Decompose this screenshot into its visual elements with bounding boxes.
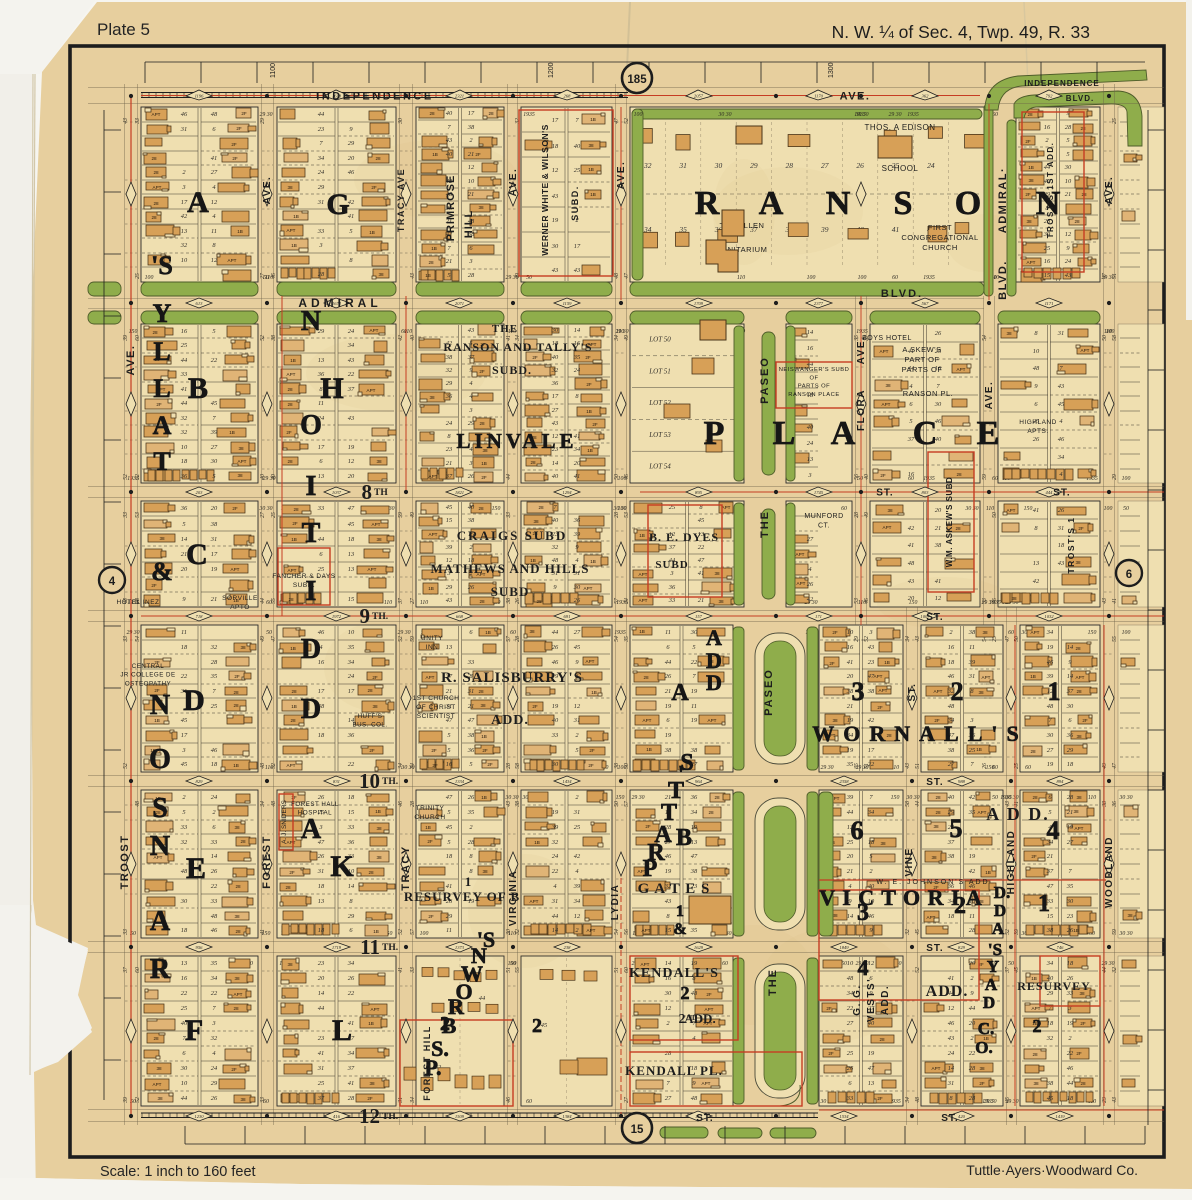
svg-text:C.: C.	[978, 1019, 995, 1038]
svg-text:24: 24	[348, 673, 355, 680]
svg-text:2F: 2F	[826, 1006, 832, 1011]
svg-text:39: 39	[123, 335, 129, 342]
svg-text:17: 17	[868, 747, 875, 754]
svg-text:29: 29	[1067, 747, 1074, 754]
svg-text:2F: 2F	[232, 156, 238, 161]
svg-text:47: 47	[691, 853, 698, 860]
svg-text:1629: 1629	[694, 945, 704, 950]
svg-text:2F: 2F	[880, 473, 886, 478]
svg-text:HUFF'S: HUFF'S	[358, 713, 383, 720]
svg-text:30: 30	[551, 243, 559, 250]
svg-text:SCIENTIST: SCIENTIST	[417, 713, 455, 720]
svg-text:SUBD.: SUBD.	[570, 185, 580, 221]
svg-text:APT: APT	[1076, 675, 1085, 680]
svg-text:45: 45	[574, 644, 580, 651]
svg-text:110: 110	[986, 506, 994, 512]
svg-text:24: 24	[211, 1065, 218, 1072]
svg-text:203: 203	[196, 490, 204, 495]
svg-text:F: F	[185, 1014, 203, 1047]
svg-text:12: 12	[468, 164, 475, 171]
svg-text:33: 33	[347, 824, 354, 831]
svg-text:34: 34	[690, 809, 698, 816]
svg-text:34: 34	[210, 975, 218, 982]
svg-text:N: N	[150, 690, 170, 721]
svg-text:31: 31	[180, 126, 187, 133]
svg-text:38: 38	[210, 521, 218, 528]
svg-text:38: 38	[968, 629, 976, 636]
svg-text:37: 37	[398, 597, 404, 605]
svg-text:28: 28	[969, 1065, 976, 1072]
svg-text:110: 110	[1088, 795, 1096, 801]
svg-text:28: 28	[288, 597, 294, 602]
svg-text:47: 47	[868, 1065, 875, 1072]
svg-text:27: 27	[1047, 747, 1054, 754]
svg-text:2: 2	[681, 983, 690, 1003]
svg-text:45: 45	[211, 400, 217, 407]
svg-text:48: 48	[908, 560, 915, 567]
svg-text:40: 40	[807, 424, 814, 431]
svg-text:35: 35	[690, 927, 697, 934]
svg-text:17: 17	[552, 393, 559, 400]
svg-text:D: D	[301, 694, 321, 725]
svg-text:12: 12	[574, 703, 581, 710]
svg-text:33: 33	[210, 839, 217, 846]
svg-text:3: 3	[181, 747, 185, 754]
svg-text:1B: 1B	[587, 448, 593, 453]
svg-text:28: 28	[1027, 112, 1033, 117]
svg-text:28: 28	[955, 526, 961, 531]
svg-text:43: 43	[552, 267, 558, 274]
svg-text:746: 746	[1057, 945, 1065, 950]
svg-text:22: 22	[868, 761, 875, 768]
svg-text:1B: 1B	[481, 461, 487, 466]
svg-text:36: 36	[573, 517, 581, 524]
svg-text:20: 20	[908, 595, 915, 602]
svg-text:43: 43	[552, 193, 558, 200]
svg-text:A: A	[992, 919, 1005, 938]
svg-text:1B: 1B	[368, 1021, 374, 1026]
svg-text:38: 38	[978, 690, 984, 695]
svg-text:5: 5	[1066, 151, 1069, 158]
svg-text:10: 10	[1065, 178, 1072, 185]
svg-text:19: 19	[691, 717, 698, 724]
svg-text:36: 36	[1112, 801, 1118, 808]
svg-text:1: 1	[676, 903, 684, 920]
svg-text:50: 50	[857, 476, 863, 482]
svg-text:R. SALISBURRY'S: R. SALISBURRY'S	[441, 670, 583, 686]
svg-text:1032: 1032	[1044, 614, 1054, 619]
svg-text:27: 27	[1067, 839, 1074, 846]
svg-text:5: 5	[869, 853, 872, 860]
svg-text:2F: 2F	[372, 675, 378, 680]
svg-text:13: 13	[807, 456, 813, 463]
svg-text:1170: 1170	[814, 94, 824, 99]
svg-text:110: 110	[384, 600, 392, 606]
svg-text:13: 13	[318, 898, 324, 905]
svg-text:LOT 50: LOT 50	[648, 336, 671, 344]
svg-text:31: 31	[968, 673, 975, 680]
svg-text:21: 21	[211, 596, 217, 603]
svg-text:ST.: ST.	[1053, 488, 1070, 499]
svg-text:18: 18	[1067, 960, 1074, 967]
svg-text:29: 29	[468, 420, 475, 427]
svg-text:34: 34	[317, 155, 325, 162]
svg-text:A: A	[706, 625, 722, 650]
svg-text:1ST CHURCH: 1ST CHURCH	[413, 695, 460, 702]
svg-text:39: 39	[968, 659, 976, 666]
svg-text:VINE: VINE	[904, 847, 915, 876]
svg-text:362: 362	[922, 94, 930, 99]
svg-text:SUBD: SUBD	[655, 559, 688, 571]
svg-text:40: 40	[552, 517, 559, 524]
svg-text:1B: 1B	[290, 358, 296, 363]
svg-text:S.: S.	[431, 1036, 449, 1061]
svg-text:1294: 1294	[562, 490, 572, 495]
svg-text:50: 50	[1102, 335, 1108, 341]
svg-text:APT: APT	[368, 567, 377, 572]
svg-text:APT: APT	[642, 928, 651, 933]
svg-text:38: 38	[947, 853, 955, 860]
svg-text:29: 29	[1102, 1097, 1108, 1103]
svg-text:JR COLLEGE DE: JR COLLEGE DE	[120, 672, 175, 679]
svg-text:18: 18	[1067, 761, 1074, 768]
svg-text:38: 38	[376, 826, 382, 831]
svg-text:22: 22	[348, 990, 355, 997]
svg-text:53: 53	[624, 512, 630, 518]
svg-text:APT: APT	[587, 928, 596, 933]
svg-text:51: 51	[915, 763, 921, 769]
svg-text:RANSON PLACE: RANSON PLACE	[788, 392, 839, 398]
svg-text:RESURVEY: RESURVEY	[1017, 979, 1091, 993]
svg-text:44: 44	[259, 598, 266, 604]
svg-text:32: 32	[210, 644, 218, 651]
svg-text:36: 36	[180, 505, 188, 512]
svg-text:43: 43	[468, 327, 474, 334]
svg-text:ST.: ST.	[696, 1113, 713, 1124]
svg-text:SUBD.: SUBD.	[293, 582, 315, 589]
svg-text:14: 14	[847, 913, 854, 920]
svg-text:24: 24	[348, 328, 355, 335]
svg-text:28: 28	[291, 689, 297, 694]
svg-text:1509: 1509	[455, 1114, 465, 1119]
svg-text:33: 33	[668, 597, 675, 604]
svg-text:43: 43	[505, 801, 512, 807]
svg-text:26: 26	[211, 868, 218, 875]
svg-text:27: 27	[807, 536, 814, 543]
svg-text:21: 21	[446, 460, 452, 467]
svg-text:38: 38	[271, 335, 277, 342]
svg-text:4: 4	[109, 576, 116, 588]
svg-text:36: 36	[445, 393, 453, 400]
svg-text:24: 24	[318, 169, 325, 176]
svg-text:47: 47	[446, 794, 453, 801]
svg-text:1300: 1300	[828, 62, 835, 78]
svg-text:28: 28	[428, 260, 434, 265]
svg-text:30 30: 30 30	[964, 506, 978, 512]
svg-text:25: 25	[211, 703, 217, 710]
svg-text:A: A	[831, 415, 856, 452]
svg-text:43: 43	[948, 1035, 954, 1042]
svg-text:41: 41	[948, 975, 954, 982]
svg-text:60: 60	[135, 335, 141, 341]
svg-text:43: 43	[446, 137, 452, 144]
svg-text:49: 49	[259, 636, 266, 642]
svg-text:APT: APT	[879, 688, 888, 693]
svg-text:1534: 1534	[839, 1114, 849, 1119]
svg-text:17: 17	[348, 688, 355, 695]
svg-text:AVE.: AVE.	[616, 161, 627, 190]
svg-text:38: 38	[240, 1097, 246, 1102]
svg-text:60: 60	[1008, 630, 1014, 636]
svg-text:2F: 2F	[369, 748, 375, 753]
svg-text:UNITY: UNITY	[421, 635, 443, 642]
svg-text:5: 5	[447, 809, 450, 816]
svg-text:22: 22	[181, 673, 188, 680]
svg-text:22: 22	[181, 990, 188, 997]
svg-text:14: 14	[552, 927, 559, 934]
svg-text:14: 14	[574, 327, 581, 334]
svg-text:18: 18	[318, 732, 325, 739]
svg-text:38: 38	[237, 473, 243, 478]
svg-text:38: 38	[156, 1066, 162, 1071]
svg-text:1B: 1B	[425, 273, 431, 278]
svg-text:28: 28	[614, 512, 620, 518]
svg-text:38: 38	[238, 446, 244, 451]
svg-text:APT: APT	[153, 1082, 162, 1087]
svg-text:CRAIGS SUBD: CRAIGS SUBD	[457, 528, 568, 543]
svg-text:40: 40	[574, 143, 581, 150]
svg-text:11: 11	[969, 644, 975, 651]
svg-text:31: 31	[467, 688, 474, 695]
svg-text:PART OF: PART OF	[904, 355, 939, 364]
svg-text:APT: APT	[367, 388, 376, 393]
svg-text:1B: 1B	[291, 243, 297, 248]
svg-text:39: 39	[846, 794, 854, 801]
svg-text:38: 38	[157, 1096, 163, 1101]
svg-text:28: 28	[318, 271, 325, 278]
svg-text:10: 10	[359, 769, 380, 793]
svg-text:APT: APT	[234, 992, 243, 997]
svg-text:28: 28	[506, 763, 512, 769]
svg-text:36: 36	[347, 839, 355, 846]
svg-text:APT: APT	[982, 675, 991, 680]
svg-text:26: 26	[1058, 507, 1065, 514]
svg-text:40: 40	[552, 717, 559, 724]
svg-text:16: 16	[181, 975, 188, 982]
svg-text:FOREST: FOREST	[261, 835, 273, 889]
svg-text:30: 30	[690, 629, 698, 636]
svg-text:38: 38	[240, 645, 246, 650]
svg-text:50: 50	[1008, 961, 1014, 967]
svg-text:C: C	[186, 538, 208, 571]
svg-text:33: 33	[180, 371, 187, 378]
svg-text:24: 24	[574, 367, 581, 374]
svg-text:38: 38	[372, 704, 378, 709]
svg-text:APT: APT	[426, 675, 435, 680]
svg-text:1384: 1384	[562, 1114, 572, 1119]
svg-text:54: 54	[981, 335, 988, 341]
svg-text:1: 1	[465, 874, 472, 889]
svg-text:2F: 2F	[432, 763, 438, 768]
svg-text:2F: 2F	[706, 992, 712, 997]
svg-text:15: 15	[446, 517, 452, 524]
svg-text:23: 23	[318, 960, 324, 967]
svg-text:2F: 2F	[427, 839, 433, 844]
svg-text:2F: 2F	[877, 1096, 883, 1101]
svg-text:25: 25	[181, 342, 187, 349]
svg-text:NEISWANGER'S SUBD: NEISWANGER'S SUBD	[779, 367, 850, 373]
svg-text:1B: 1B	[534, 840, 540, 845]
svg-text:37: 37	[1005, 966, 1011, 974]
svg-text:28: 28	[153, 1036, 159, 1041]
svg-text:30: 30	[551, 761, 559, 768]
svg-text:21: 21	[446, 258, 452, 265]
svg-text:APT: APT	[228, 258, 237, 263]
svg-text:G. G.: G. G.	[852, 984, 863, 1015]
svg-text:28: 28	[233, 690, 239, 695]
svg-text:FOREST HILL: FOREST HILL	[422, 1025, 432, 1101]
svg-text:INN: INN	[426, 644, 439, 651]
svg-text:28: 28	[151, 215, 157, 220]
svg-text:15: 15	[348, 596, 354, 603]
svg-text:41: 41	[892, 225, 900, 234]
svg-text:32: 32	[180, 242, 188, 249]
svg-text:20: 20	[847, 853, 854, 860]
svg-text:1B: 1B	[985, 870, 991, 875]
svg-text:24: 24	[807, 440, 814, 447]
svg-text:150: 150	[891, 795, 900, 801]
svg-text:A D D.: A D D.	[986, 804, 1050, 824]
svg-text:11: 11	[360, 935, 380, 959]
svg-text:48: 48	[613, 273, 620, 279]
svg-text:33: 33	[123, 929, 129, 936]
svg-text:40: 40	[552, 473, 559, 480]
svg-text:1821: 1821	[455, 490, 464, 495]
svg-text:26: 26	[348, 975, 355, 982]
svg-text:28: 28	[235, 929, 241, 934]
svg-text:18: 18	[181, 927, 188, 934]
svg-text:APT: APT	[1032, 1006, 1041, 1011]
svg-text:38: 38	[467, 732, 475, 739]
svg-text:18: 18	[348, 536, 355, 543]
svg-text:25: 25	[318, 1080, 324, 1087]
svg-text:27: 27	[821, 161, 829, 170]
svg-text:668: 668	[456, 614, 464, 619]
svg-text:1B: 1B	[369, 230, 375, 235]
svg-text:567: 567	[922, 301, 930, 306]
svg-text:40: 40	[552, 354, 559, 361]
svg-text:1B: 1B	[485, 630, 491, 635]
svg-text:110: 110	[737, 275, 745, 281]
svg-text:38: 38	[867, 688, 875, 695]
svg-text:41: 41	[935, 578, 941, 585]
svg-text:1972: 1972	[332, 614, 342, 619]
svg-text:13: 13	[318, 357, 324, 364]
svg-text:38: 38	[480, 703, 486, 708]
svg-text:38: 38	[478, 205, 484, 210]
svg-text:HOTEL INEZ: HOTEL INEZ	[116, 599, 159, 606]
svg-text:45: 45	[446, 824, 452, 831]
svg-text:32: 32	[210, 1035, 218, 1042]
svg-text:28: 28	[1032, 795, 1038, 800]
svg-text:46: 46	[211, 747, 218, 754]
svg-text:268: 268	[564, 94, 572, 99]
svg-text:29: 29	[446, 380, 453, 387]
svg-text:2: 2	[1033, 1016, 1042, 1036]
svg-text:5: 5	[692, 644, 695, 651]
svg-text:43: 43	[1101, 598, 1108, 604]
svg-text:ADD.: ADD.	[880, 985, 891, 1015]
svg-text:31: 31	[317, 868, 324, 875]
svg-text:28: 28	[368, 870, 374, 875]
svg-text:31: 31	[317, 1065, 324, 1072]
svg-text:BLVD.: BLVD.	[1066, 94, 1094, 103]
svg-text:33: 33	[317, 228, 324, 235]
svg-text:2F: 2F	[236, 126, 242, 131]
svg-text:1171: 1171	[1045, 301, 1054, 306]
svg-text:45: 45	[181, 761, 187, 768]
svg-text:50: 50	[614, 801, 620, 807]
svg-text:44: 44	[552, 629, 559, 636]
svg-text:D: D	[706, 670, 722, 695]
svg-text:TH: TH	[374, 488, 388, 498]
svg-text:2057: 2057	[694, 94, 704, 99]
svg-text:48: 48	[691, 1095, 698, 1102]
svg-text:21: 21	[1067, 809, 1073, 816]
svg-text:18: 18	[1067, 1095, 1074, 1102]
svg-text:24: 24	[948, 1050, 955, 1057]
svg-text:10: 10	[348, 629, 355, 636]
svg-text:12: 12	[1065, 231, 1072, 238]
svg-text:47: 47	[468, 717, 475, 724]
svg-text:25: 25	[1112, 118, 1118, 124]
svg-text:FIRST: FIRST	[928, 223, 952, 232]
svg-text:28: 28	[287, 402, 293, 407]
svg-text:25: 25	[1044, 245, 1050, 252]
svg-text:22: 22	[348, 371, 355, 378]
svg-text:100: 100	[618, 506, 627, 512]
svg-text:28: 28	[935, 810, 941, 815]
svg-text:19: 19	[847, 747, 854, 754]
svg-text:58: 58	[1112, 335, 1118, 341]
svg-text:47: 47	[1047, 883, 1054, 890]
svg-text:38: 38	[1075, 560, 1081, 565]
svg-text:2358: 2358	[839, 779, 849, 784]
svg-text:2F: 2F	[1080, 1021, 1086, 1026]
svg-text:988: 988	[958, 779, 966, 784]
svg-text:21: 21	[665, 688, 671, 695]
svg-text:11: 11	[691, 703, 697, 710]
svg-text:48: 48	[211, 913, 218, 920]
svg-text:5: 5	[349, 228, 352, 235]
svg-text:38: 38	[714, 571, 720, 576]
svg-text:THE: THE	[492, 323, 518, 335]
svg-text:ST.: ST.	[907, 683, 918, 702]
svg-text:Y: Y	[153, 299, 172, 328]
svg-text:OF CHRIST: OF CHRIST	[416, 704, 456, 711]
svg-text:SORVILLE: SORVILLE	[222, 595, 258, 602]
svg-text:38: 38	[376, 537, 382, 542]
svg-text:1849: 1849	[839, 945, 849, 950]
svg-text:45: 45	[698, 517, 704, 524]
svg-text:24: 24	[446, 420, 453, 427]
svg-text:26: 26	[318, 853, 325, 860]
svg-text:30: 30	[934, 401, 942, 408]
svg-text:2F: 2F	[231, 142, 237, 147]
svg-text:BUS. COL.: BUS. COL.	[352, 722, 387, 729]
svg-text:46: 46	[1067, 1065, 1074, 1072]
svg-text:16: 16	[807, 345, 814, 352]
